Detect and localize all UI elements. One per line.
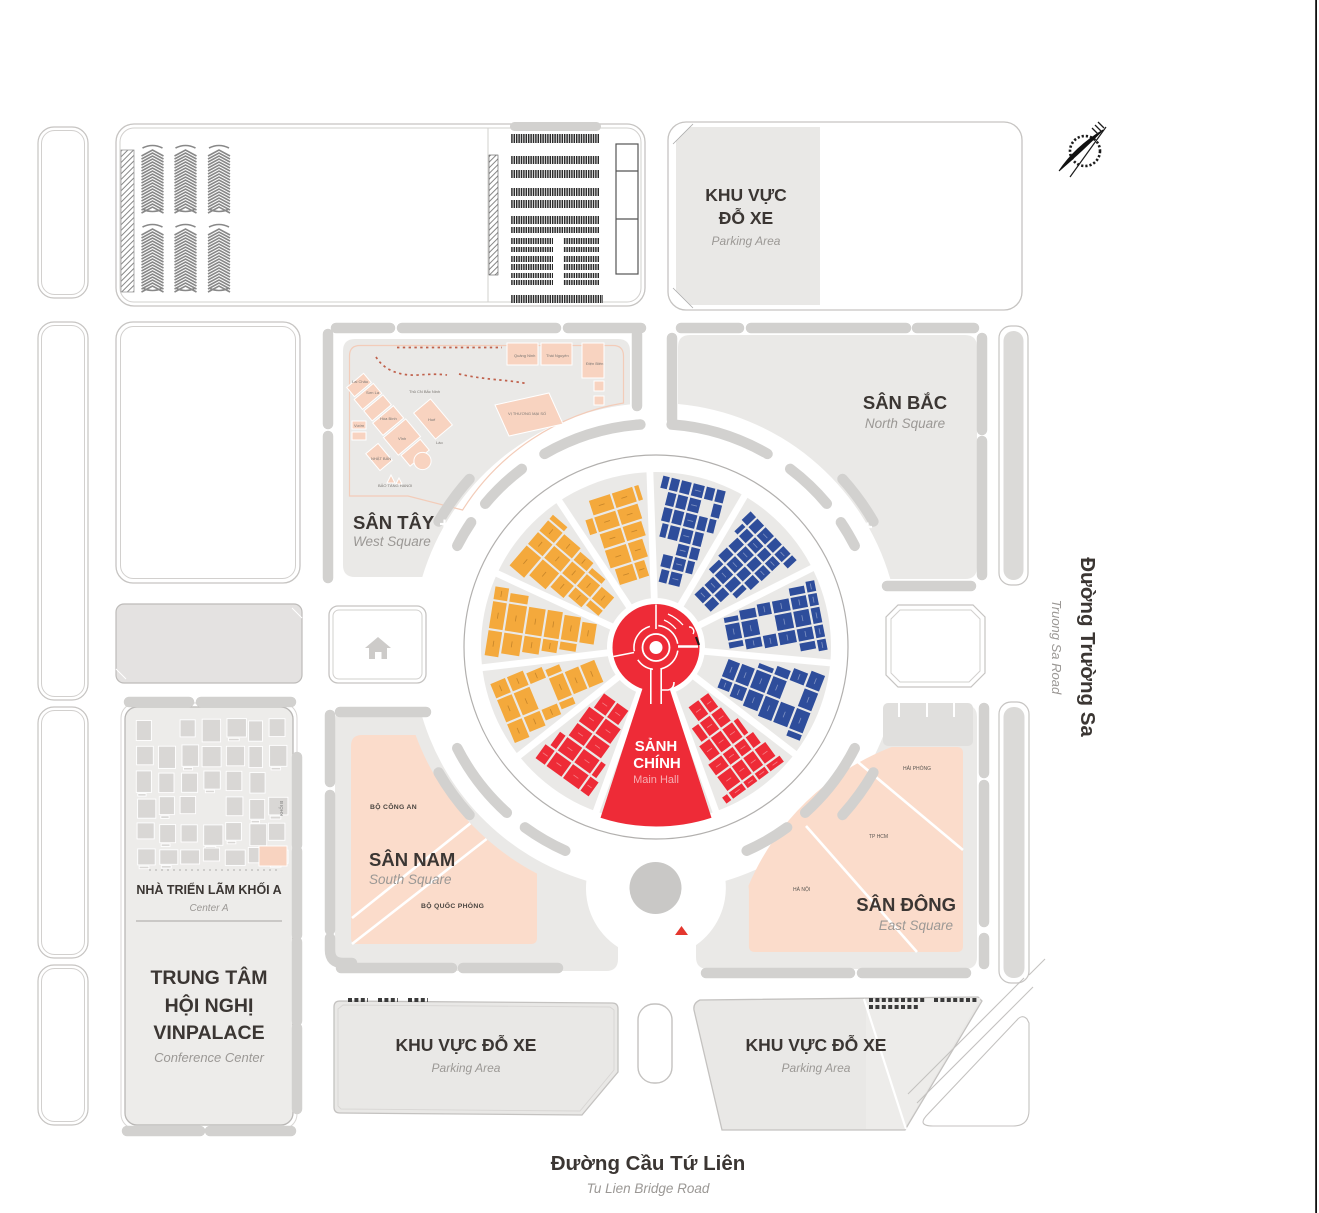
svg-text:TP HCM: TP HCM [869, 834, 888, 840]
svg-text:Sơn La: Sơn La [366, 390, 380, 395]
svg-text:KHU VỰC ĐỖ XE: KHU VỰC ĐỖ XE [746, 1034, 887, 1055]
svg-text:HỘI NGHỊ: HỘI NGHỊ [165, 993, 254, 1017]
svg-text:Vĩnh: Vĩnh [398, 436, 406, 441]
svg-text:Điện Biên: Điện Biên [586, 361, 603, 366]
svg-text:Parking Area: Parking Area [782, 1061, 851, 1075]
svg-text:Parking Area: Parking Area [432, 1061, 501, 1075]
svg-text:Huế: Huế [428, 417, 436, 422]
svg-text:Quảng Ninh: Quảng Ninh [514, 353, 535, 358]
svg-text:North Square: North Square [865, 416, 945, 431]
svg-text:HẢI PHÒNG: HẢI PHÒNG [903, 765, 931, 772]
svg-text:Parking Area: Parking Area [712, 234, 781, 248]
svg-text:Đường Cầu Tứ Liên: Đường Cầu Tứ Liên [551, 1152, 746, 1175]
svg-text:NHẬT BẢN: NHẬT BẢN [371, 456, 391, 461]
svg-text:Tu Lien Bridge Road: Tu Lien Bridge Road [587, 1181, 710, 1196]
svg-text:Thủ CN Bắc Ninh: Thủ CN Bắc Ninh [409, 389, 440, 394]
svg-text:Thái Nguyên: Thái Nguyên [546, 353, 569, 358]
svg-text:Lai Châu: Lai Châu [352, 379, 368, 384]
svg-text:BẢO TÀNG HANOI: BẢO TÀNG HANOI [378, 483, 412, 488]
svg-text:Center A: Center A [189, 903, 228, 914]
svg-text:Lào: Lào [436, 440, 443, 445]
svg-text:KHU VỰC: KHU VỰC [705, 185, 787, 205]
svg-text:SẢNH: SẢNH [635, 738, 678, 755]
svg-text:KHU VỰC ĐỖ XE: KHU VỰC ĐỖ XE [396, 1034, 537, 1055]
svg-text:Truong Sa Road: Truong Sa Road [1049, 600, 1064, 695]
svg-text:Vườn: Vườn [354, 423, 364, 428]
svg-text:BỘ CÔNG AN: BỘ CÔNG AN [370, 802, 417, 811]
svg-text:Main Hall: Main Hall [633, 774, 679, 786]
svg-text:SÂN TÂY: SÂN TÂY [353, 512, 435, 533]
svg-text:Đường Trường Sa: Đường Trường Sa [1076, 557, 1099, 737]
svg-text:CHÍNH: CHÍNH [633, 755, 681, 772]
svg-text:VỊ THƯƠNG MẠI SỐ: VỊ THƯƠNG MẠI SỐ [508, 411, 546, 416]
svg-text:SÂN ĐÔNG: SÂN ĐÔNG [856, 894, 956, 915]
svg-text:KHỐI B: KHỐI B [278, 801, 284, 816]
svg-text:SÂN NAM: SÂN NAM [369, 849, 455, 870]
svg-text:VINPALACE: VINPALACE [153, 1022, 264, 1044]
svg-text:ĐỖ XE: ĐỖ XE [719, 207, 773, 228]
svg-text:Hòa Bình: Hòa Bình [380, 416, 397, 421]
svg-text:East Square: East Square [879, 918, 953, 933]
svg-text:West Square: West Square [353, 534, 431, 549]
svg-text:Conference Center: Conference Center [154, 1050, 265, 1065]
svg-text:SÂN BẮC: SÂN BẮC [863, 392, 947, 413]
svg-text:TRUNG TÂM: TRUNG TÂM [151, 965, 268, 989]
svg-text:South Square: South Square [369, 872, 452, 887]
svg-text:NHÀ TRIỂN LÃM KHỐI A: NHÀ TRIỂN LÃM KHỐI A [136, 882, 281, 897]
svg-text:HÀ NỘI: HÀ NỘI [793, 886, 810, 893]
